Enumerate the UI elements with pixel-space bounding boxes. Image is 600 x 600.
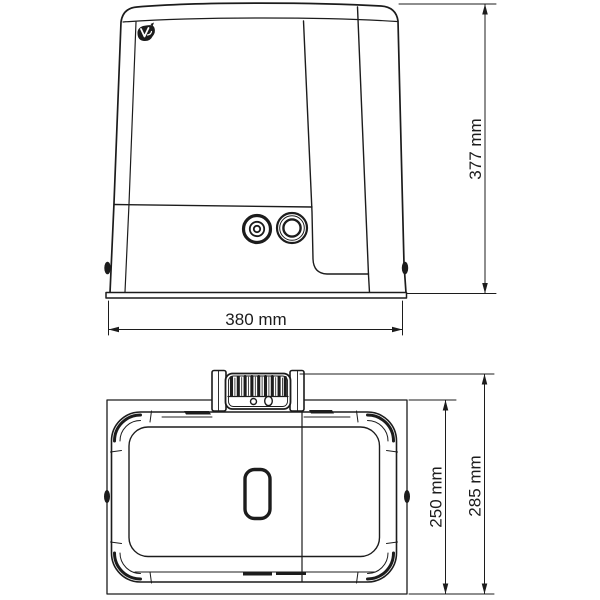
dim-width-380: 380 mm xyxy=(109,301,403,335)
gasket-mark-top-left xyxy=(184,411,211,415)
gasket-mark-top-right xyxy=(309,410,334,414)
arrow-left xyxy=(109,327,120,333)
anchor-bolt-left xyxy=(104,262,110,275)
front-view xyxy=(104,3,408,298)
motor-body-outline xyxy=(110,3,406,293)
dim-height-377: 377 mm xyxy=(399,4,496,294)
body-depth-dimension-label: 250 mm xyxy=(427,466,446,527)
gear-bracket-right xyxy=(290,371,304,412)
dim-depth-250: 250 mm xyxy=(409,400,456,594)
gasket-mark-bottom-left xyxy=(243,572,272,576)
side-bolt-left xyxy=(104,490,110,503)
pinion-gear-assembly xyxy=(212,371,304,412)
technical-drawing-page: 380 mm 377 mm xyxy=(0,0,600,600)
arrow-top xyxy=(482,374,488,385)
base-plate xyxy=(106,293,407,299)
arrow-top xyxy=(443,400,449,411)
width-dimension-label: 380 mm xyxy=(225,310,286,329)
anchor-bolt-right xyxy=(402,262,408,275)
motor-cover-top xyxy=(111,410,398,583)
arrow-right xyxy=(392,327,403,333)
arrow-top xyxy=(482,4,488,15)
gasket-mark-bottom-right xyxy=(276,572,306,576)
top-view xyxy=(104,371,410,595)
arrow-bottom xyxy=(482,584,488,595)
height-dimension-label: 377 mm xyxy=(466,118,485,179)
overall-depth-dimension-label: 285 mm xyxy=(466,455,485,516)
arrow-bottom xyxy=(443,584,449,595)
gate-motor-dimension-drawing: 380 mm 377 mm xyxy=(0,0,600,600)
release-cover xyxy=(245,470,270,519)
arrow-bottom xyxy=(482,283,488,294)
side-bolt-right xyxy=(404,490,410,503)
gear-bracket-left xyxy=(212,371,226,412)
